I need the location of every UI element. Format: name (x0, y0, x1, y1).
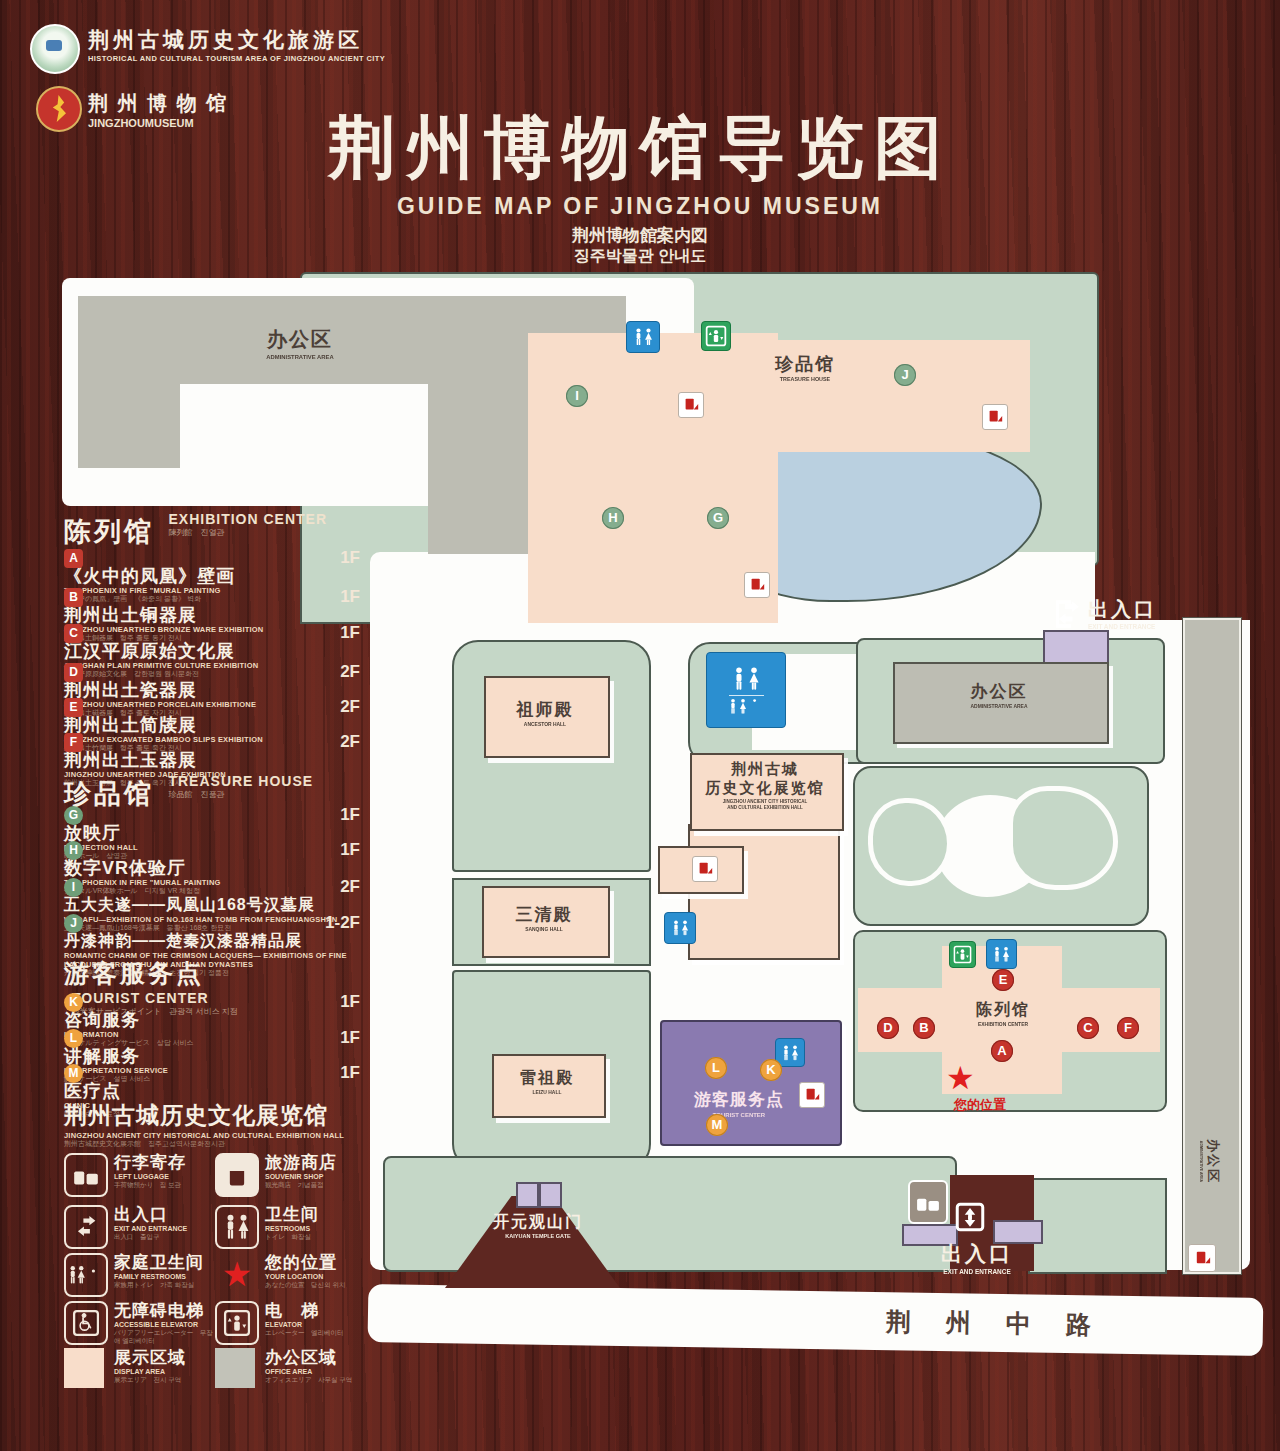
item-floor: 1-2F (325, 913, 360, 933)
map-marker-e: E (992, 969, 1014, 991)
legend-accessible-elevator: 无障碍电梯ACCESSIBLE ELEVATORバリアフリーエレベーター 무장애… (64, 1301, 214, 1345)
badge-g: G (64, 806, 83, 825)
item-zh: 丹漆神韵——楚秦汉漆器精品展 (64, 931, 366, 951)
exit-entrance-icon (64, 1205, 108, 1249)
item-floor: 1F (340, 992, 360, 1012)
lawn-south-east (1028, 1178, 1167, 1274)
item-floor: 1F (340, 840, 360, 860)
legend-display-area: 展示区域DISPLAY AREA展示エリア 전시 구역 (64, 1348, 214, 1384)
tourism-area-name-en: HISTORICAL AND CULTURAL TOURISM AREA OF … (88, 54, 385, 63)
badge-e: E (64, 698, 83, 717)
fac-zh: 电 梯 (265, 1301, 365, 1320)
item-zh: 医疗点 (64, 1081, 366, 1101)
legend-left-luggage: 行李寄存LEFT LUGGAGE手荷物預かり 짐 보관 (64, 1153, 214, 1189)
badge-m: M (64, 1064, 83, 1083)
badge-b: B (64, 588, 83, 607)
fac-zh: 出入口 (114, 1205, 214, 1224)
badge-l: L (64, 1029, 83, 1048)
badge-j: J (64, 914, 83, 933)
gate-tower-east (539, 1182, 562, 1208)
your-location-star (946, 1062, 975, 1094)
legend-restrooms: 卫生间RESTROOMSトイレ 화장실 (215, 1205, 365, 1241)
treasure-house-label: 珍品馆TREASURE HOUSE (745, 352, 865, 382)
badge-k: K (64, 993, 83, 1012)
fac-en: OFFICE AREA (265, 1367, 365, 1376)
elevator-icon-treasure-1 (678, 392, 704, 418)
badge-i: I (64, 878, 83, 897)
item-floor: 2F (340, 662, 360, 682)
badge-a: A (64, 549, 83, 568)
item-floor: 1F (340, 623, 360, 643)
item-floor: 1F (340, 1063, 360, 1083)
fac-zh: 卫生间 (265, 1205, 365, 1224)
map-marker-m: M (706, 1114, 728, 1136)
exit-entrance-icon-top (1053, 599, 1083, 633)
fac-zh: 家庭卫生间 (114, 1253, 214, 1272)
fac-sub: トイレ 화장실 (265, 1233, 365, 1241)
restroom-family-icon-central (706, 652, 786, 728)
fac-sub: 観光商店 기념품점 (265, 1181, 365, 1189)
garden-islet-west (868, 798, 952, 886)
tourism-area-logo-mark (46, 40, 62, 51)
elevator-icon (215, 1301, 259, 1345)
fac-zh: 展示区域 (114, 1348, 214, 1367)
fac-en: FAMILY RESTROOMS (114, 1272, 214, 1281)
legend-family-restrooms: 家庭卫生间FAMILY RESTROOMS家族用トイレ 가족 화장실 (64, 1253, 214, 1289)
item-floor: 1F (340, 1028, 360, 1048)
accessible-elevator-icon (64, 1301, 108, 1345)
map-marker-c: C (1077, 1017, 1099, 1039)
map-marker-h: H (602, 507, 624, 529)
fac-sub: 手荷物預かり 짐 보관 (114, 1181, 214, 1189)
section-title-en: TREASURE HOUSE (168, 773, 313, 789)
item-floor: 1F (340, 587, 360, 607)
item-floor: 1F (340, 805, 360, 825)
fac-en: YOUR LOCATION (265, 1272, 365, 1281)
item-zh: 咨询服务 (64, 1010, 366, 1030)
admin-area-right-label: 办公区ADMINISTRATIVE AREA (893, 680, 1105, 709)
fac-en: ACCESSIBLE ELEVATOR (114, 1320, 214, 1329)
road-label: 荆 州 中 路 (728, 1290, 1264, 1356)
road: 荆 州 中 路 (368, 1284, 1264, 1356)
display-area-swatch (64, 1348, 104, 1388)
fac-en: LEFT LUGGAGE (114, 1172, 214, 1181)
fac-zh: 行李寄存 (114, 1153, 214, 1172)
badge-h: H (64, 841, 83, 860)
map-marker-i: I (566, 385, 588, 407)
page-subtitle-en: GUIDE MAP OF JINGZHOU MUSEUM (0, 193, 1280, 220)
left-luggage-icon-map (908, 1180, 948, 1224)
fac-en: EXIT AND ENTRANCE (114, 1224, 214, 1233)
item-zh: 荆州出土玉器展 (64, 750, 366, 770)
item-floor: 2F (340, 697, 360, 717)
tourism-area-name: 荆州古城历史文化旅游区 (88, 26, 385, 54)
ancestor-hall-label: 祖师殿ANCESTOR HALL (484, 698, 606, 727)
item-floor: 1F (340, 548, 360, 568)
map-marker-k: K (760, 1059, 782, 1081)
item-zh: 数字VR体验厅 (64, 858, 366, 878)
section-title-zh: 游客服务点 (64, 959, 204, 987)
entrance-bottom-label: 出入口 EXIT AND ENTRANCE (912, 1240, 1042, 1275)
sanqing-hall-label: 三清殿SANQING HALL (482, 903, 606, 932)
map-marker-d: D (877, 1017, 899, 1039)
hall-note-zh: 荆州古城历史文化展览馆 (64, 1100, 366, 1131)
item-zh: 荆州出土铜器展 (64, 605, 366, 625)
elevator-icon-treasure-2 (744, 572, 770, 598)
fac-zh: 无障碍电梯 (114, 1301, 214, 1320)
fac-sub: 展示エリア 전시 구역 (114, 1376, 214, 1384)
badge-d: D (64, 663, 83, 682)
fac-sub: 家族用トイレ 가족 화장실 (114, 1281, 214, 1289)
section-title-sub: 陳列館 진열관 (168, 527, 327, 538)
fac-zh: 办公区域 (265, 1348, 365, 1367)
fac-sub: バリアフリーエレベーター 무장애 엘리베이터 (114, 1329, 214, 1345)
legend-souvenir-shop: 旅游商店SOUVENIR SHOP観光商店 기념품점 (215, 1153, 365, 1189)
exit-entrance-icon-bottom (955, 1202, 985, 1236)
legend-hall-note: 荆州古城历史文化展览馆 JINGZHOU ANCIENT CITY HISTOR… (64, 1100, 366, 1148)
elevator-icon-treasure-green (701, 321, 731, 351)
admin-area-top-label: 办公区ADMINISTRATIVE AREA (200, 326, 400, 360)
gate-tower-west (516, 1182, 539, 1208)
hall-note-sub: 荆州古城歴史文化展示館 징주고성역사문화전시관 (64, 1140, 366, 1148)
legend-section-exhibition-center: 陈列馆 EXHIBITION CENTER 陳列館 진열관 (64, 511, 366, 550)
building-gatehouse-top (1043, 630, 1109, 664)
fac-sub: 出入口 출입구 (114, 1233, 214, 1241)
map-marker-a: A (991, 1040, 1013, 1062)
exhibition-center-label: 陈列馆EXHIBITION CENTER (948, 1000, 1058, 1027)
badge-f: F (64, 733, 83, 752)
tourism-area-logo (30, 24, 80, 74)
exhibition-hall-complex-label: 荆州古城 历史文化展览馆 JINGZHOU ANCIENT CITY HISTO… (690, 760, 840, 810)
map-marker-b: B (913, 1017, 935, 1039)
restroom-icon-exhibition-hall (664, 912, 696, 944)
fac-sub: エレベーター 엘리베이터 (265, 1329, 365, 1337)
admin-strip-label: 办公区ADMINISTRATIVE AREA (1199, 1120, 1222, 1204)
badge-c: C (64, 624, 83, 643)
page-title: 荆州博物馆导览图 (0, 103, 1280, 194)
your-location-label: 您的位置 (930, 1096, 1030, 1114)
fac-en: DISPLAY AREA (114, 1367, 214, 1376)
legend-your-location: 您的位置YOUR LOCATIONあなたの位置 당신의 위치 (215, 1253, 365, 1289)
souvenir-shop-icon (215, 1153, 259, 1197)
fac-en: RESTROOMS (265, 1224, 365, 1233)
office-area-swatch (215, 1348, 255, 1388)
item-zh: 《火中的凤凰》壁画 (64, 566, 366, 586)
elevator-icon-exhibition-center (949, 941, 976, 968)
item-floor: 2F (340, 732, 360, 752)
map-marker-l: L (705, 1057, 727, 1079)
hall-note-en: JINGZHOU ANCIENT CITY HISTORICAL AND CUL… (64, 1131, 366, 1140)
item-zh: 江汉平原原始文化展 (64, 641, 366, 661)
fac-en: SOUVENIR SHOP (265, 1172, 365, 1181)
elevator-icon-exhibition-hall (692, 856, 718, 882)
fac-sub: あなたの位置 당신의 위치 (265, 1281, 365, 1289)
elevator-icon-treasure-3 (982, 404, 1008, 430)
your-location-star-icon (217, 1253, 257, 1293)
page-subtitle-ko: 징주박물관 안내도 (0, 246, 1280, 267)
restroom-icon-exhibition-center (986, 939, 1017, 969)
legend-office-area: 办公区域OFFICE AREAオフィスエリア 사무실 구역 (215, 1348, 365, 1384)
section-title-zh: 陈列馆 (64, 517, 154, 547)
leizu-hall-label: 雷祖殿LEIZU HALL (492, 1068, 602, 1095)
map-marker-g: G (707, 507, 729, 529)
page-subtitle-ja: 荆州博物館案内図 (0, 224, 1280, 247)
legend-panel: 陈列馆 EXHIBITION CENTER 陳列館 진열관 A 《火中的凤凰》壁… (64, 505, 366, 1415)
fac-zh: 旅游商店 (265, 1153, 365, 1172)
item-zh: 五大夫遂——凤凰山168号汉墓展 (64, 895, 366, 915)
fac-sub: オフィスエリア 사무실 구역 (265, 1376, 365, 1384)
map-marker-f: F (1117, 1017, 1139, 1039)
fac-zh: 您的位置 (265, 1253, 365, 1272)
section-title-en: EXHIBITION CENTER (168, 511, 327, 527)
entrance-top-label: 出入口 EXIT AND ENTRANCE (1088, 596, 1198, 630)
gate-label: 开元观山门 KAIYUAN TEMPLE GATE (468, 1212, 608, 1239)
restroom-icon-treasure (626, 321, 660, 353)
section-title-sub: 珍品館 진품관 (168, 789, 313, 800)
legend-elevator: 电 梯ELEVATORエレベーター 엘리베이터 (215, 1301, 365, 1337)
legend-exit-entrance: 出入口EXIT AND ENTRANCE出入口 출입구 (64, 1205, 214, 1241)
item-floor: 2F (340, 877, 360, 897)
left-luggage-icon (64, 1153, 108, 1197)
fac-en: ELEVATOR (265, 1320, 365, 1329)
family-restrooms-icon (64, 1253, 108, 1297)
elevator-icon-strip (1188, 1244, 1216, 1272)
poster: { "header": { "logo1": {"line1": "荆州古城历史… (0, 0, 1280, 1451)
restrooms-icon (215, 1205, 259, 1249)
map-marker-j: J (894, 364, 916, 386)
tourist-center-label: 游客服务点 TOURIST CENTER (664, 1088, 814, 1118)
tourism-area-logo-text: 荆州古城历史文化旅游区 HISTORICAL AND CULTURAL TOUR… (88, 26, 385, 63)
